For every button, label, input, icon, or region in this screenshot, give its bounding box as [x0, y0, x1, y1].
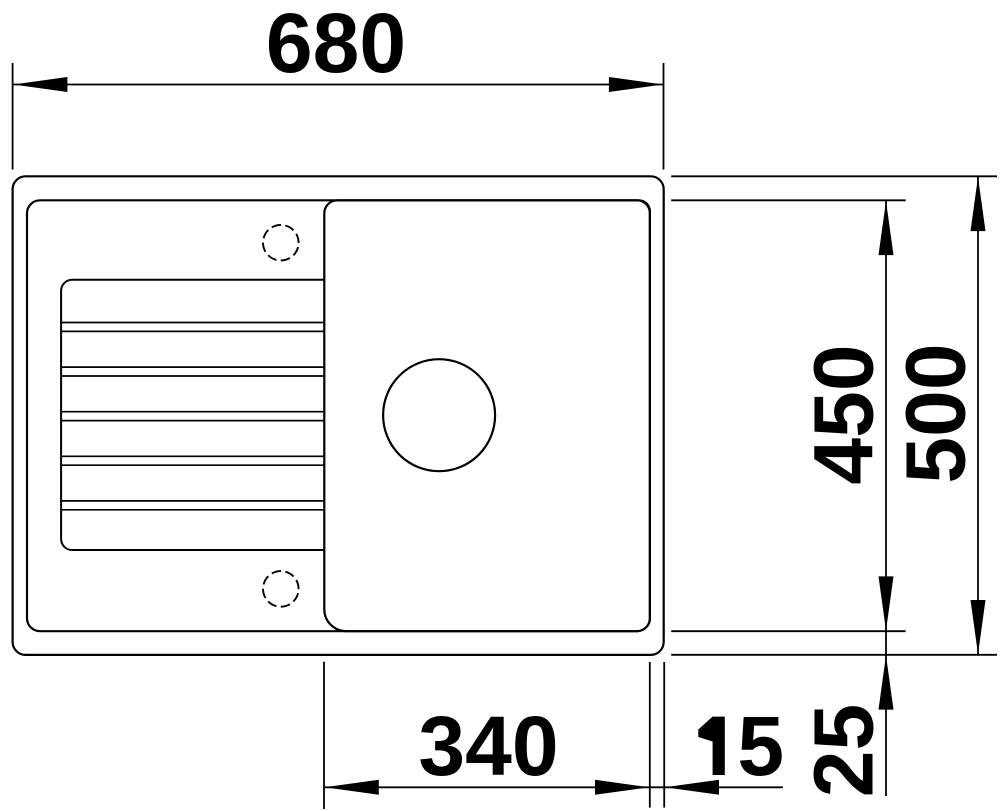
svg-text:340: 340 — [418, 699, 558, 793]
svg-text:680: 680 — [266, 0, 406, 90]
svg-text:450: 450 — [797, 344, 891, 484]
svg-text:500: 500 — [889, 343, 983, 483]
svg-text:25: 25 — [797, 704, 891, 797]
svg-text:5: 5 — [737, 699, 784, 793]
